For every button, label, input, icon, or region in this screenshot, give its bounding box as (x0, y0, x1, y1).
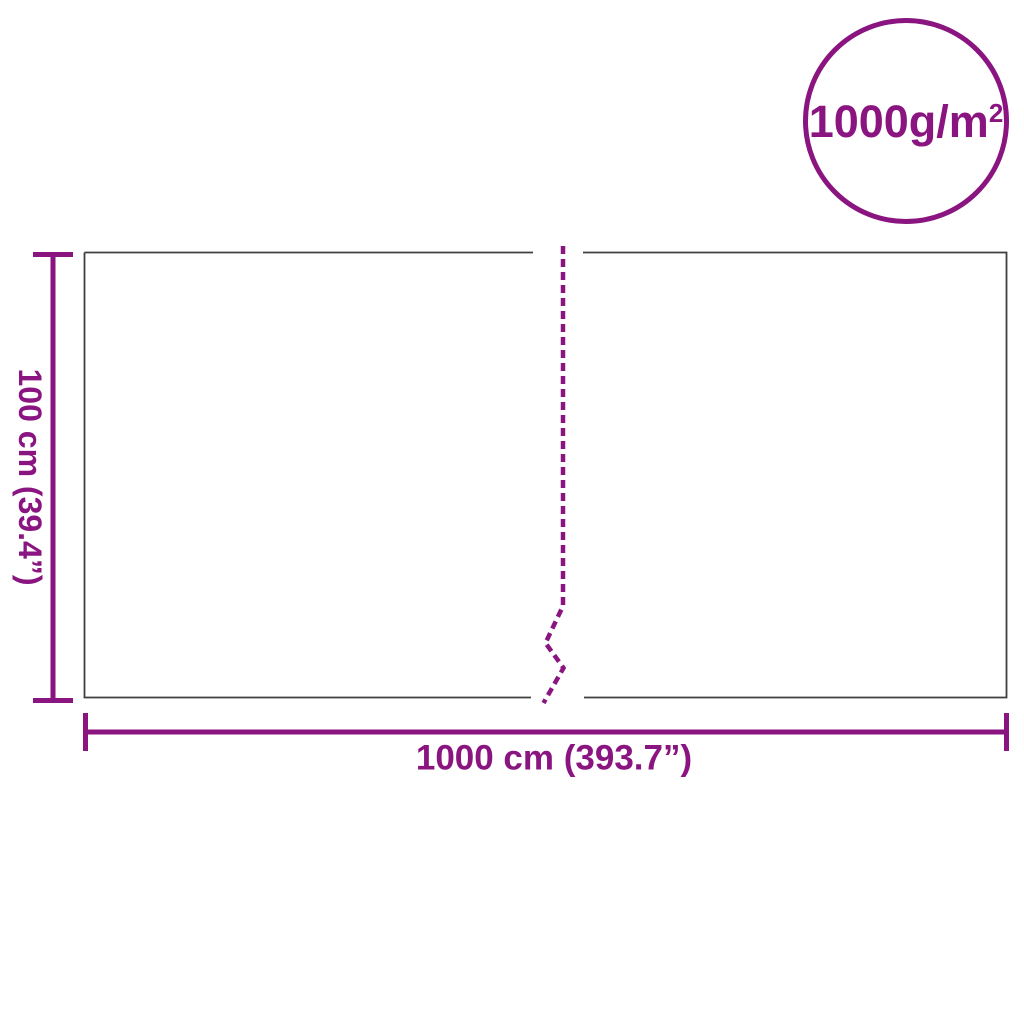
weight-badge-value: 1000g/m (809, 96, 989, 147)
weight-badge: 1000g/m2 (803, 18, 1009, 224)
weight-badge-label: 1000g/m2 (809, 99, 1004, 144)
weight-badge-superscript: 2 (989, 98, 1003, 128)
product-dimension-diagram: 100 cm (39.4”) 1000 cm (393.7”) 1000g/m2 (0, 0, 1024, 1024)
width-dimension-label: 1000 cm (393.7”) (416, 741, 692, 776)
panel-outline (85, 253, 1007, 698)
height-dimension-label: 100 cm (39.4”) (14, 368, 46, 585)
fold-break-line-icon (544, 246, 564, 703)
